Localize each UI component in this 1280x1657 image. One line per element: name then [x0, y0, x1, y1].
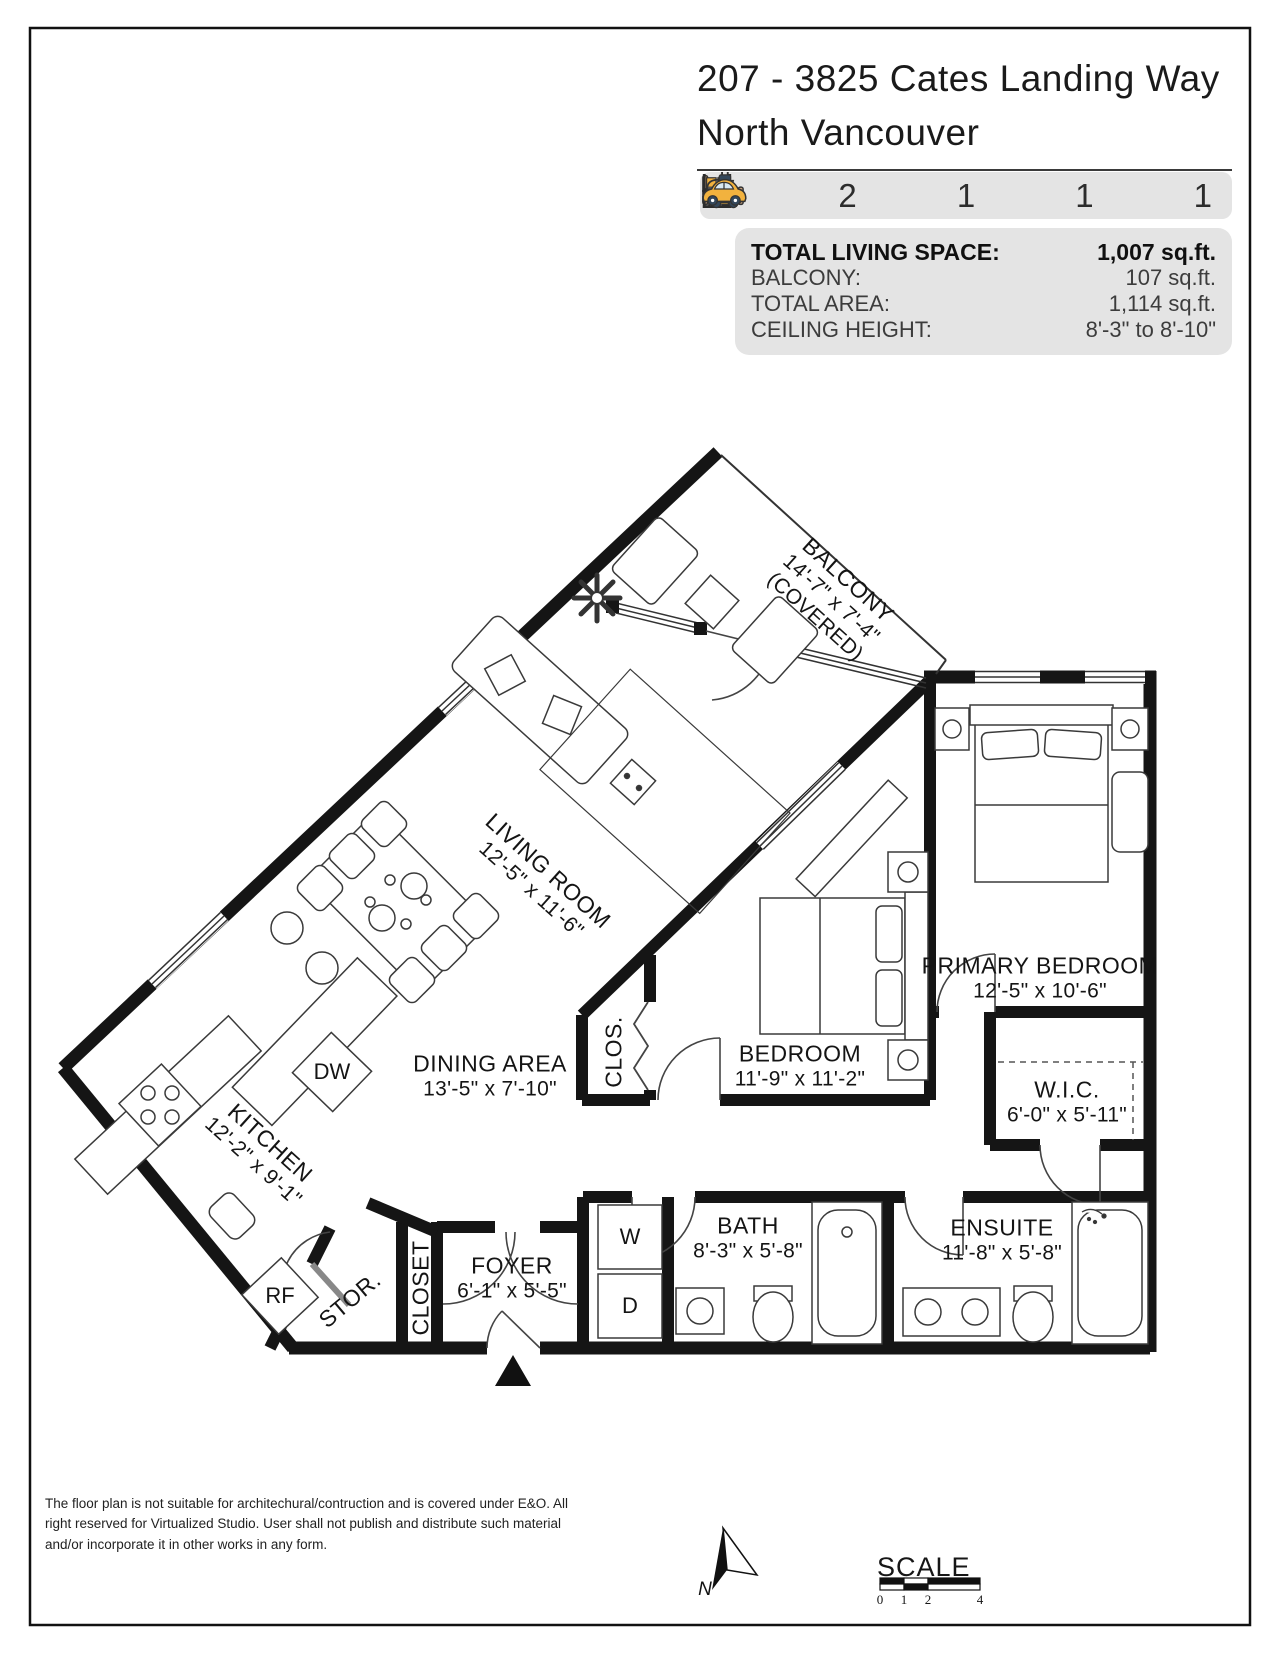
scale-tick: 1 — [901, 1592, 908, 1608]
room-label-ensuite: ENSUITE 11'-8" x 5'-8" — [942, 1215, 1062, 1266]
fridge-label: RF — [265, 1283, 294, 1309]
scale-tick: 2 — [925, 1592, 932, 1608]
feature-bathrooms: 2 — [838, 177, 856, 215]
room-label-foyer: FOYER 6'-1" x 5'-5" — [457, 1253, 567, 1304]
stats-box: TOTAL LIVING SPACE: 1,007 sq.ft. BALCONY… — [735, 228, 1232, 355]
feature-ev-parking: 1 — [1075, 177, 1093, 215]
entry-arrow — [495, 1355, 531, 1386]
stat-value: 8'-3" to 8'-10" — [1086, 317, 1216, 343]
scale-title: SCALE — [877, 1552, 971, 1583]
feature-storage: 1 — [957, 177, 975, 215]
dryer-label: D — [622, 1293, 638, 1319]
primary-bedroom-furniture — [935, 705, 1148, 882]
stat-value: 1,007 sq.ft. — [1097, 239, 1216, 265]
disclaimer-text: The floor plan is not suitable for archi… — [45, 1494, 593, 1555]
room-label-dining-area: DINING AREA 13'-5" x 7'-10" — [413, 1051, 567, 1102]
north-arrow-icon — [712, 1528, 757, 1590]
features-bar: 2 2 1 — [700, 172, 1232, 219]
scale-ticks: 0 1 2 4 — [880, 1592, 980, 1606]
room-label-clos: CLOS. — [601, 1016, 628, 1088]
stat-label: CEILING HEIGHT: — [751, 317, 932, 343]
stat-ceiling-height: CEILING HEIGHT: 8'-3" to 8'-10" — [751, 317, 1216, 343]
page-title: 207 - 3825 Cates Landing Way — [697, 52, 1232, 106]
room-label-closet: CLOSET — [408, 1240, 435, 1335]
bathrooms-count: 2 — [838, 177, 856, 215]
stat-total-living-space: TOTAL LIVING SPACE: 1,007 sq.ft. — [751, 239, 1216, 265]
dishwasher-label: DW — [314, 1059, 351, 1085]
stat-value: 107 sq.ft. — [1125, 265, 1216, 291]
scale-tick: 4 — [977, 1592, 984, 1608]
room-label-primary-bedroom: PRIMARY BEDROOM 12'-5" x 10'-6" — [922, 953, 1159, 1004]
room-label-wic: W.I.C. 6'-0" x 5'-11" — [1007, 1077, 1127, 1128]
ev-parking-count: 1 — [1075, 177, 1093, 215]
stat-label: TOTAL AREA: — [751, 291, 890, 317]
stat-label: BALCONY: — [751, 265, 861, 291]
stat-balcony: BALCONY: 107 sq.ft. — [751, 265, 1216, 291]
storage-count: 1 — [957, 177, 975, 215]
stat-total-area: TOTAL AREA: 1,114 sq.ft. — [751, 291, 1216, 317]
stat-label: TOTAL LIVING SPACE: — [751, 239, 1000, 265]
feature-parking: 1 — [1194, 177, 1212, 215]
washer-label: W — [620, 1224, 641, 1250]
parking-count: 1 — [1194, 177, 1212, 215]
north-label: N — [698, 1579, 712, 1601]
room-label-bedroom: BEDROOM 11'-9" x 11'-2" — [735, 1041, 866, 1092]
room-label-bath: BATH 8'-3" x 5'-8" — [693, 1213, 803, 1264]
floorplan-page: 207 - 3825 Cates Landing Way North Vanco… — [0, 0, 1280, 1657]
page-subtitle: North Vancouver — [697, 106, 1232, 160]
plant — [574, 575, 620, 621]
title-divider — [697, 169, 1232, 171]
car-icon — [700, 172, 748, 208]
scale-tick: 0 — [877, 1592, 884, 1608]
header: 207 - 3825 Cates Landing Way North Vanco… — [697, 52, 1232, 171]
stat-value: 1,114 sq.ft. — [1109, 291, 1216, 317]
